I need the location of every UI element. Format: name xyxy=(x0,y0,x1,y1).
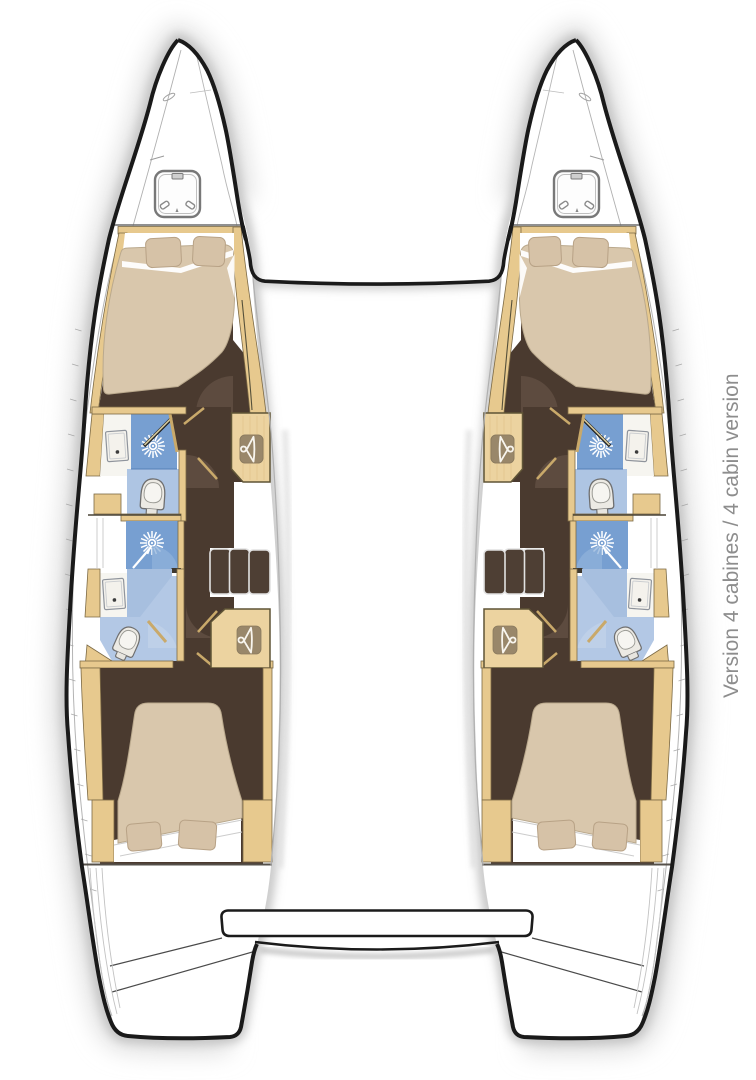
svg-text:Version 4 cabines / 4 cabin ve: Version 4 cabines / 4 cabin version xyxy=(720,373,743,698)
